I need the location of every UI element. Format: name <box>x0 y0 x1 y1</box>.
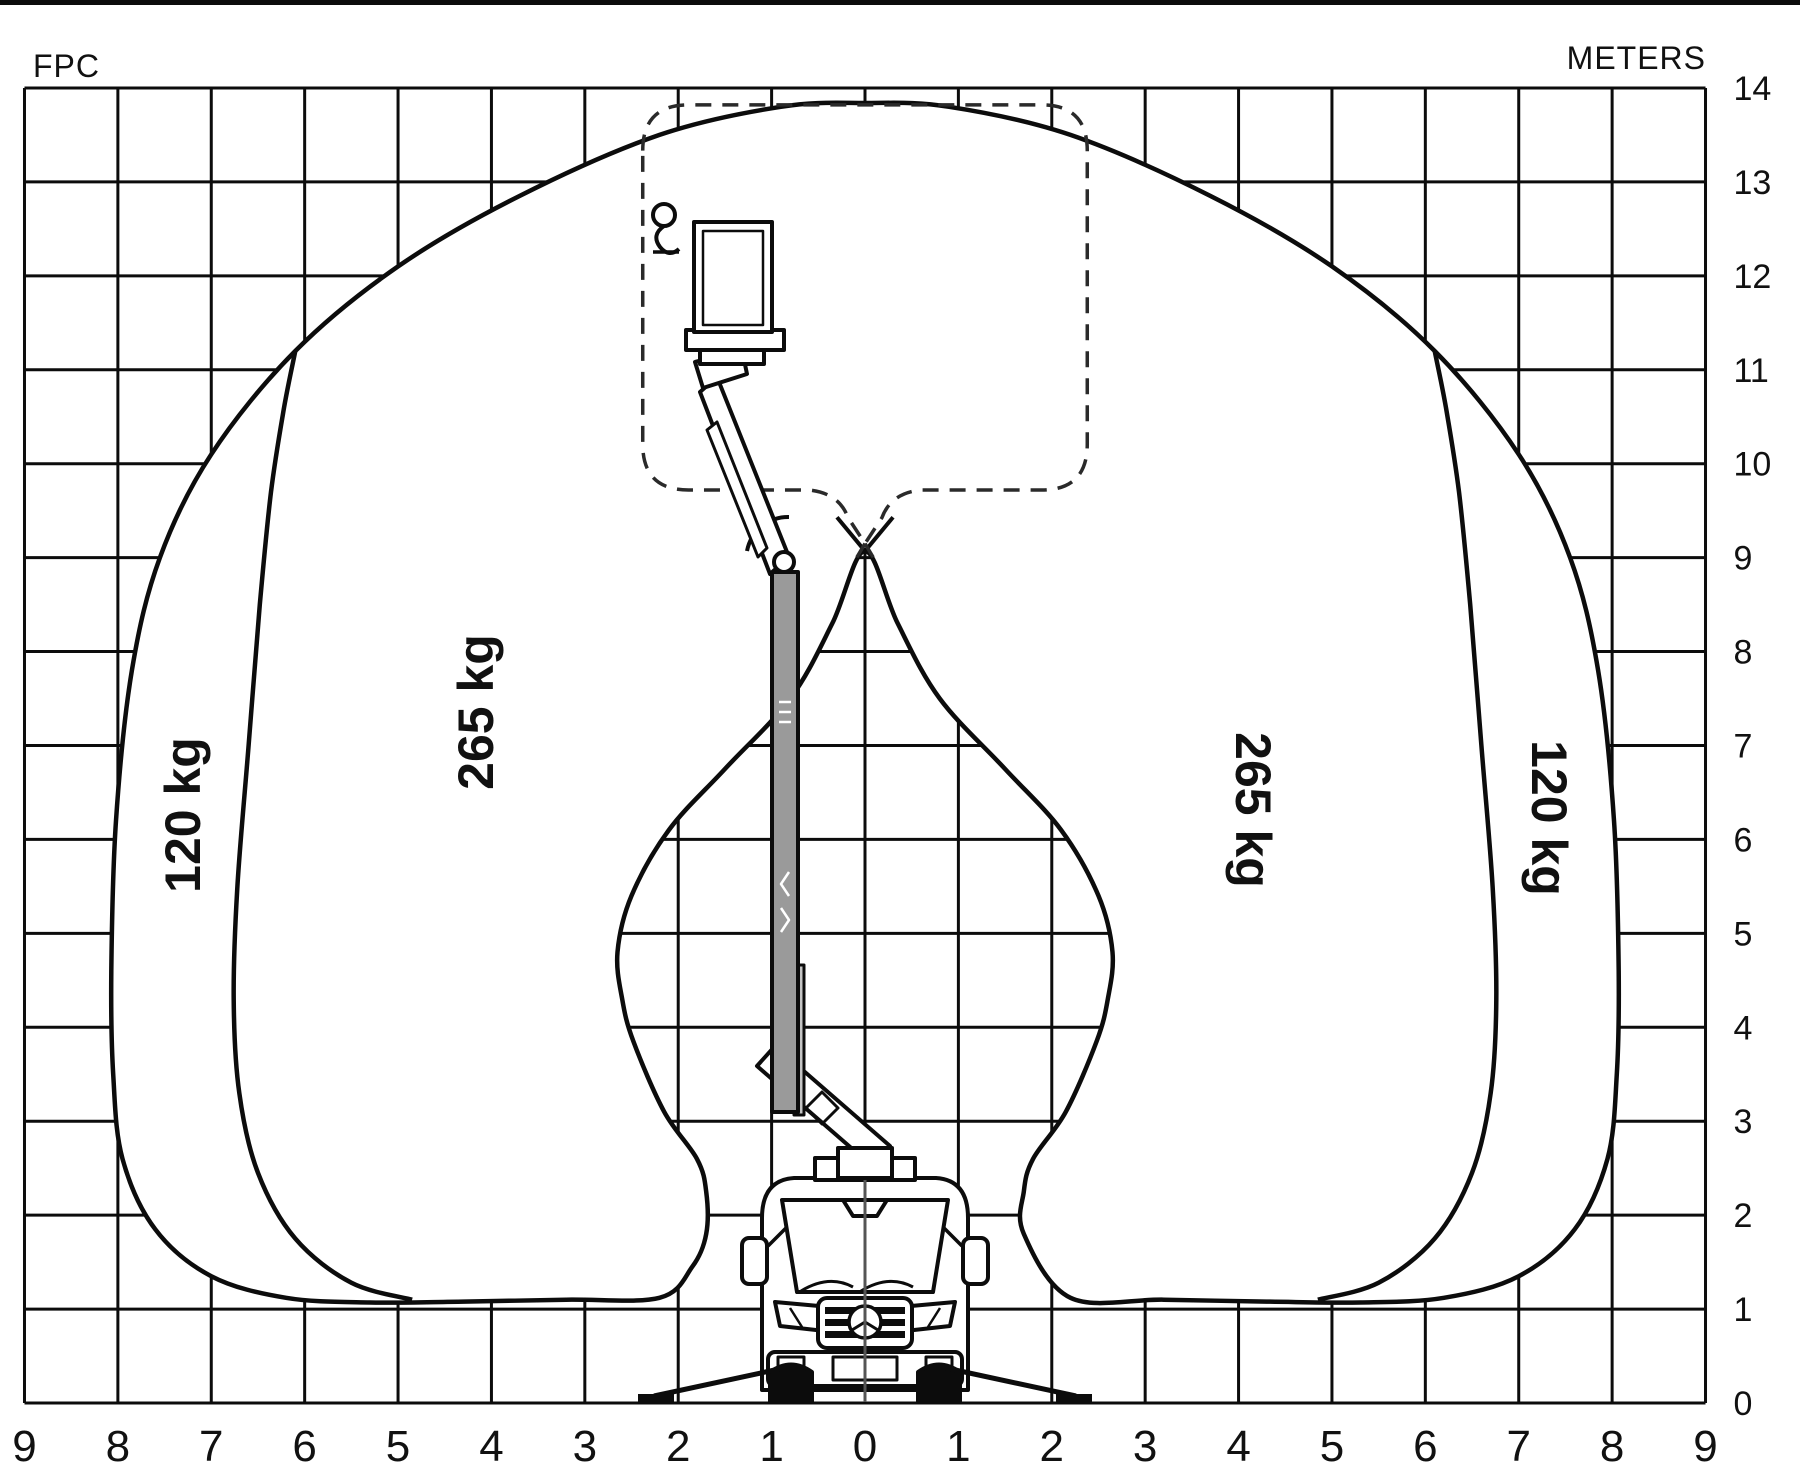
x-tick-label: 8 <box>106 1422 130 1471</box>
x-tick-label: 2 <box>666 1422 690 1471</box>
zone-label-left-265kg: 265 kg <box>447 634 505 790</box>
y-tick-label: 4 <box>1734 1009 1753 1047</box>
y-tick-label: 3 <box>1734 1103 1753 1141</box>
outrigger-pad-right <box>1056 1394 1092 1402</box>
x-tick-label: 6 <box>1413 1422 1437 1471</box>
x-tick-label: 4 <box>1226 1422 1250 1471</box>
basket-icon <box>686 222 784 364</box>
y-tick-label: 6 <box>1734 821 1753 859</box>
y-tick-label: 12 <box>1734 258 1772 296</box>
x-tick-label: 5 <box>386 1422 410 1471</box>
outrigger-pad-left <box>638 1394 674 1402</box>
meters-axis-title: METERS <box>1400 40 1706 77</box>
x-tick-label: 1 <box>946 1422 970 1471</box>
x-tick-label: 3 <box>1133 1422 1157 1471</box>
basket-mount <box>700 350 764 364</box>
side-mirror-right <box>963 1238 988 1284</box>
x-tick-label: 4 <box>479 1422 503 1471</box>
zone-label-right-120kg: 120 kg <box>1520 740 1578 896</box>
y-tick-label: 11 <box>1734 352 1769 390</box>
y-tick-label: 10 <box>1734 446 1772 484</box>
y-tick-label: 0 <box>1734 1385 1753 1423</box>
y-tick-label: 9 <box>1734 540 1753 578</box>
x-tick-label: 9 <box>12 1422 36 1471</box>
x-tick-label: 9 <box>1693 1422 1717 1471</box>
x-tick-label: 6 <box>292 1422 316 1471</box>
hook-eye <box>653 204 675 226</box>
fpc-label: FPC <box>33 48 100 85</box>
telescopic-mast <box>772 572 798 1112</box>
y-tick-label: 7 <box>1734 727 1753 765</box>
y-tick-label: 2 <box>1734 1197 1753 1235</box>
x-tick-label: 5 <box>1320 1422 1344 1471</box>
elbow-pivot <box>774 552 794 572</box>
envelope-chart-svg: 987654321012345678901234567891011121314 <box>0 0 1800 1472</box>
x-tick-label: 1 <box>759 1422 783 1471</box>
x-tick-label: 8 <box>1600 1422 1624 1471</box>
zone-label-right-265kg: 265 kg <box>1224 732 1282 888</box>
x-tick-label: 7 <box>199 1422 223 1471</box>
y-tick-label: 8 <box>1734 634 1753 672</box>
x-tick-label: 7 <box>1506 1422 1530 1471</box>
x-tick-label: 0 <box>853 1422 877 1471</box>
y-tick-label: 13 <box>1734 164 1772 202</box>
y-tick-label: 1 <box>1734 1291 1753 1329</box>
x-tick-label: 2 <box>1040 1422 1064 1471</box>
side-mirror-left <box>742 1238 767 1284</box>
y-tick-label: 5 <box>1734 915 1753 953</box>
working-range-diagram: 987654321012345678901234567891011121314 … <box>0 0 1800 1472</box>
turret-post <box>838 1148 892 1178</box>
zone-label-left-120kg: 120 kg <box>154 737 212 893</box>
basket-box <box>694 222 772 332</box>
x-tick-label: 3 <box>573 1422 597 1471</box>
y-tick-label: 14 <box>1734 70 1772 108</box>
top-border-bar <box>0 0 1800 5</box>
